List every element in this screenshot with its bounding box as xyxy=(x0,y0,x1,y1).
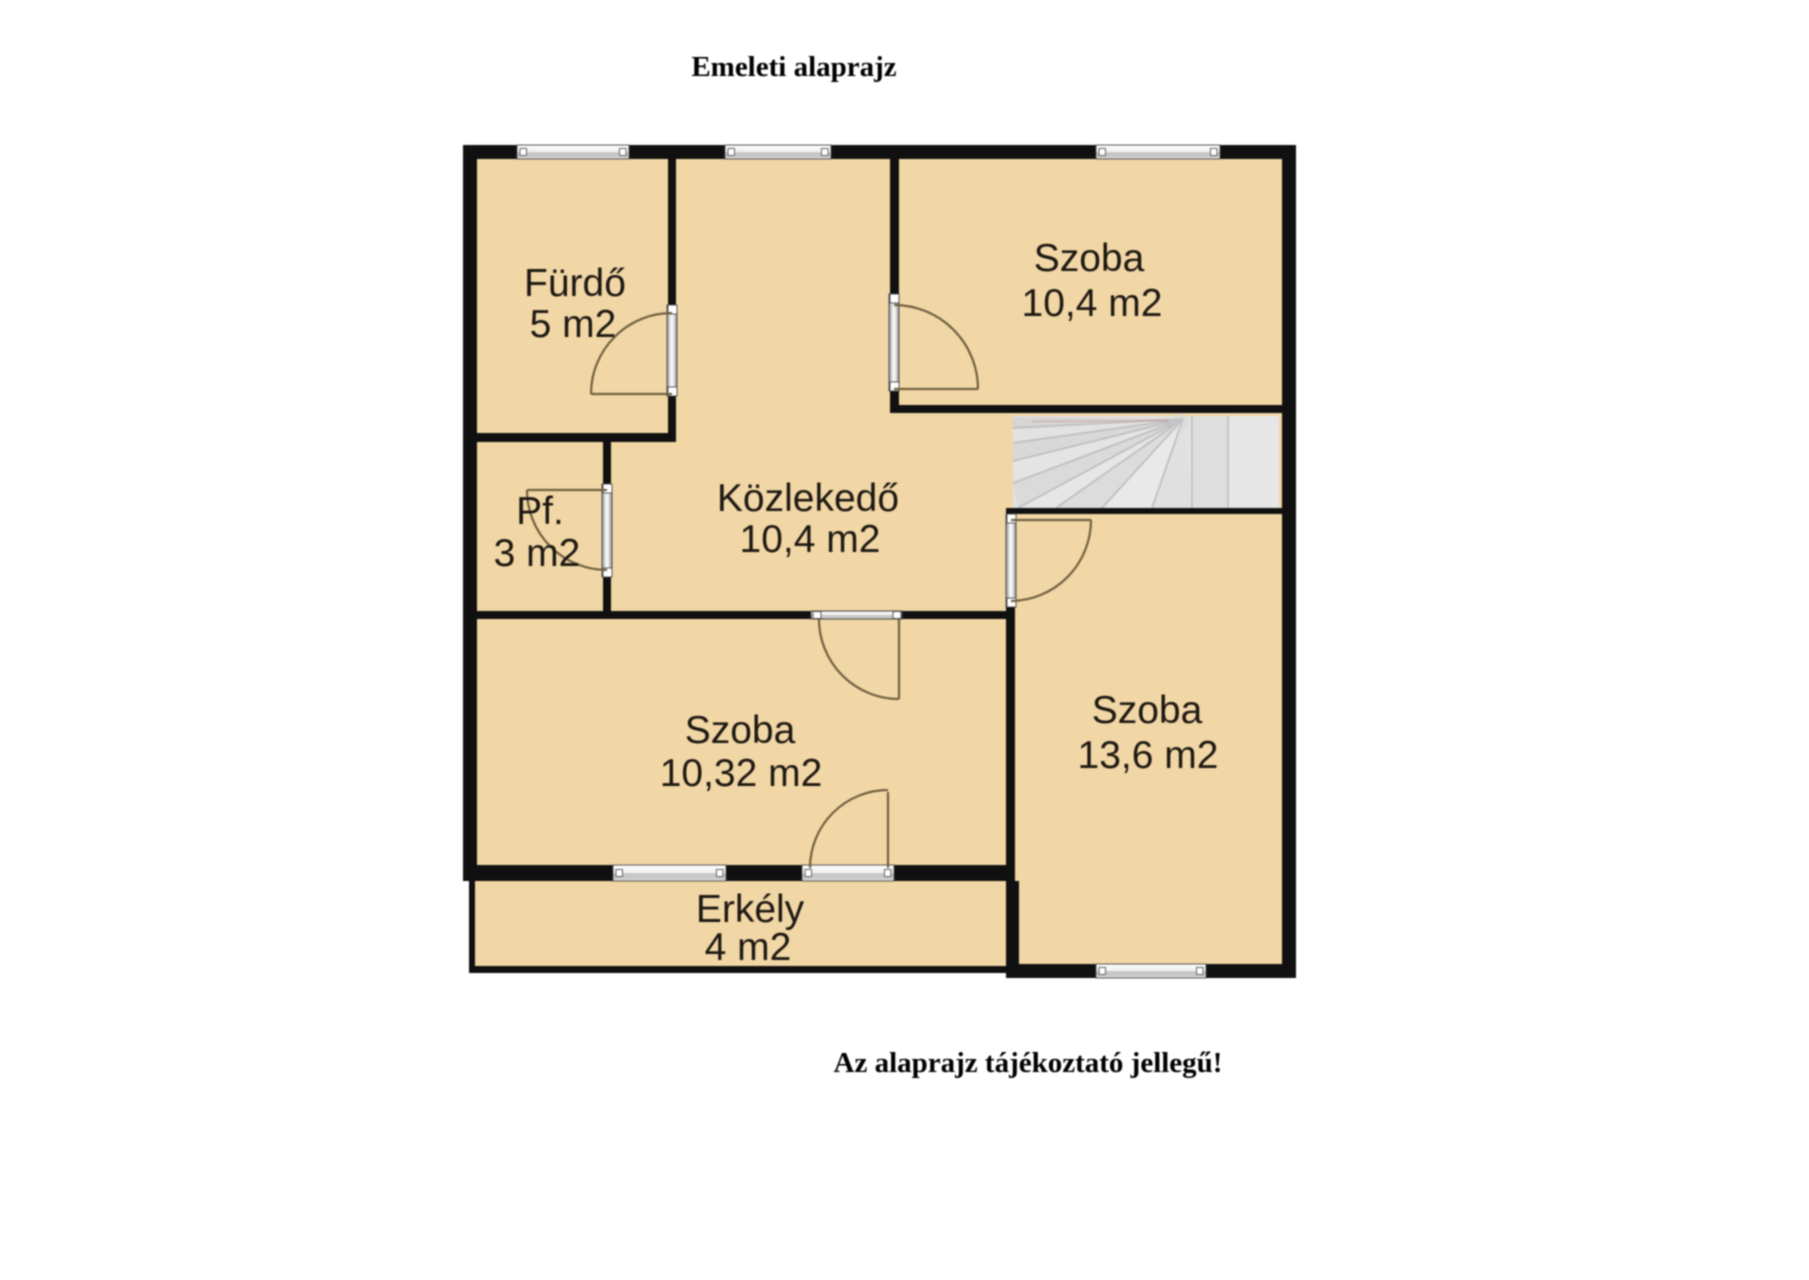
svg-text:Közlekedő: Közlekedő xyxy=(717,477,899,520)
svg-text:Az alaprajz tájékoztató jelleg: Az alaprajz tájékoztató jellegű! xyxy=(834,1047,1223,1079)
svg-text:Pf.: Pf. xyxy=(516,490,564,533)
svg-text:Emeleti alaprajz: Emeleti alaprajz xyxy=(691,51,896,83)
svg-text:13,6 m2: 13,6 m2 xyxy=(1078,734,1219,777)
svg-text:Fürdő: Fürdő xyxy=(524,262,626,305)
svg-text:10,4 m2: 10,4 m2 xyxy=(740,518,881,561)
svg-text:10,4 m2: 10,4 m2 xyxy=(1022,282,1163,325)
svg-text:Szoba: Szoba xyxy=(1092,689,1203,732)
svg-text:Szoba: Szoba xyxy=(685,709,796,752)
svg-text:5 m2: 5 m2 xyxy=(530,303,617,346)
svg-text:3 m2: 3 m2 xyxy=(494,532,581,575)
svg-text:4 m2: 4 m2 xyxy=(705,926,792,969)
svg-text:Szoba: Szoba xyxy=(1034,237,1145,280)
svg-text:Erkély: Erkély xyxy=(696,888,805,931)
svg-text:10,32 m2: 10,32 m2 xyxy=(660,752,823,795)
